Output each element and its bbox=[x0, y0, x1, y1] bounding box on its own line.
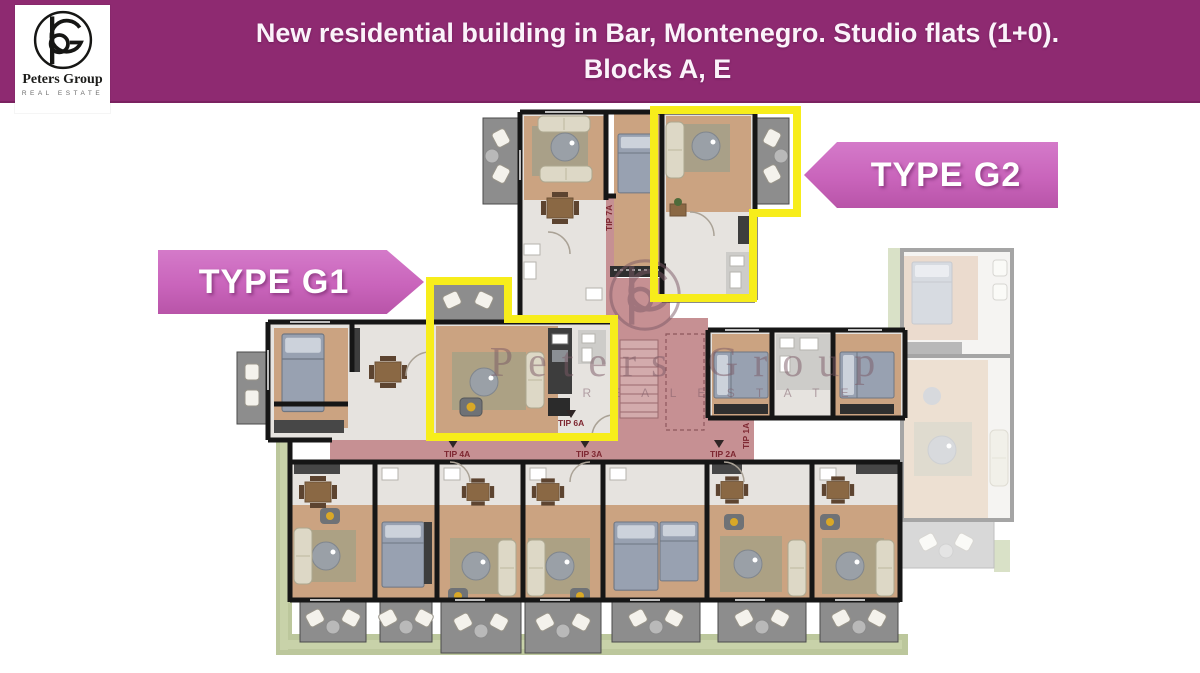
pg-monogram-icon bbox=[32, 9, 94, 71]
banner-type-g2-label: TYPE G2 bbox=[871, 156, 1022, 195]
banner-type-g1: TYPE G1 bbox=[158, 250, 424, 314]
logo-name: Peters Group bbox=[22, 72, 102, 88]
unit-tag-7a: TIP 7A bbox=[604, 205, 614, 231]
bottom-block bbox=[290, 440, 900, 653]
unit-tag-2a: TIP 2A bbox=[710, 449, 736, 459]
logo-box: Peters Group REAL ESTATE bbox=[15, 5, 110, 113]
banner-type-g1-label: TYPE G1 bbox=[199, 263, 350, 302]
logo-tagline: REAL ESTATE bbox=[22, 90, 103, 97]
watermark-name: Peters Group bbox=[490, 340, 890, 386]
unit-tag-6a: TIP 6A bbox=[558, 418, 584, 428]
floor-plan: TIP 7A TIP 6A TIP 4A TIP 3A TIP 2A TIP 1… bbox=[0, 0, 1200, 673]
unit-tag-4a: TIP 4A bbox=[444, 449, 470, 459]
watermark-tagline: R E A L E S T A T E bbox=[582, 386, 857, 400]
banner-type-g2: TYPE G2 bbox=[804, 142, 1058, 208]
slide: New residential building in Bar, Montene… bbox=[0, 0, 1200, 673]
unit-type-g2 bbox=[662, 112, 755, 300]
unit-tag-3a: TIP 3A bbox=[576, 449, 602, 459]
unit-tag-1a: TIP 1A bbox=[741, 423, 751, 449]
